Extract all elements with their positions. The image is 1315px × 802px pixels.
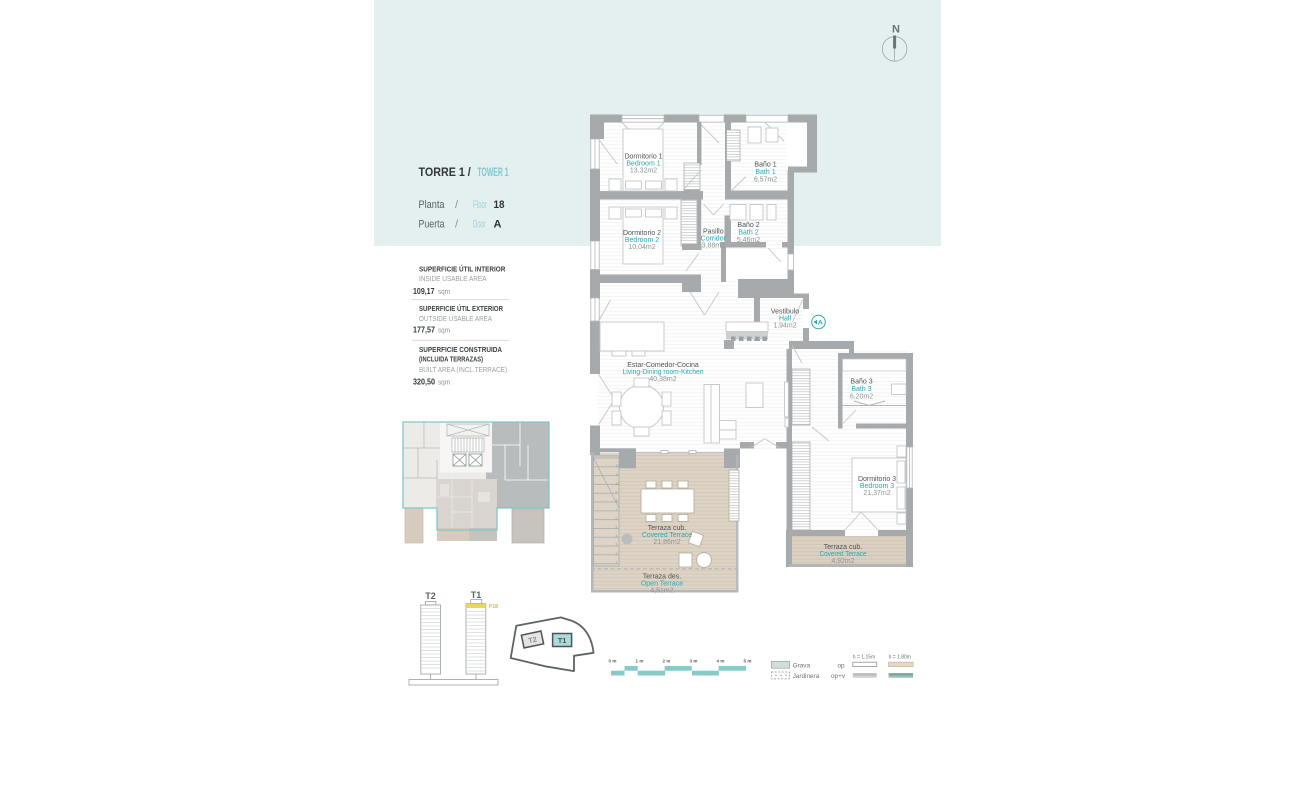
svg-text:Hall: Hall xyxy=(779,316,792,323)
svg-text:Terraza cub.: Terraza cub. xyxy=(824,544,863,551)
svg-text:op+v: op+v xyxy=(831,673,846,680)
svg-text:109,17: 109,17 xyxy=(413,287,435,296)
svg-text:h = 1.80m: h = 1.80m xyxy=(889,655,911,661)
svg-text:7: 7 xyxy=(616,508,618,512)
svg-text:Bedroom 2: Bedroom 2 xyxy=(625,237,659,244)
svg-text:5,46m2: 5,46m2 xyxy=(737,237,760,244)
svg-text:N: N xyxy=(892,24,900,36)
svg-text:INSIDE USABLE AREA: INSIDE USABLE AREA xyxy=(419,274,487,283)
svg-text:SUPERFICIE ÚTIL EXTERIOR: SUPERFICIE ÚTIL EXTERIOR xyxy=(419,304,503,313)
svg-text:Bath 1: Bath 1 xyxy=(755,169,775,176)
svg-text:Terraza des.: Terraza des. xyxy=(643,574,682,581)
svg-text:TORRE 1 /: TORRE 1 / xyxy=(419,165,472,179)
svg-text:Dormitorio 3: Dormitorio 3 xyxy=(858,476,896,483)
svg-text:sqm: sqm xyxy=(438,378,450,387)
svg-text:2 m: 2 m xyxy=(663,659,671,664)
svg-text:Bedroom 1: Bedroom 1 xyxy=(626,161,660,168)
svg-text:sqm: sqm xyxy=(438,326,450,335)
svg-text:sqm: sqm xyxy=(438,287,450,296)
svg-text:9: 9 xyxy=(616,491,618,495)
svg-text:Baño 3: Baño 3 xyxy=(850,379,872,386)
svg-text:1: 1 xyxy=(616,561,618,565)
svg-text:OUTSIDE USABLE AREA: OUTSIDE USABLE AREA xyxy=(419,314,493,323)
svg-text:Puerta: Puerta xyxy=(419,219,446,231)
svg-text:4,51m2: 4,51m2 xyxy=(650,588,673,595)
svg-text:3 m: 3 m xyxy=(690,659,698,664)
svg-text:3: 3 xyxy=(616,543,618,547)
svg-text:320,50: 320,50 xyxy=(413,378,436,387)
svg-text:2: 2 xyxy=(616,552,618,556)
svg-text:Dormitorio 2: Dormitorio 2 xyxy=(623,230,661,237)
svg-text:0 m: 0 m xyxy=(609,659,617,664)
svg-text:TOWER 1: TOWER 1 xyxy=(478,165,509,179)
svg-text:P18: P18 xyxy=(489,604,498,610)
svg-text:13,32m2: 13,32m2 xyxy=(630,168,657,175)
svg-text:T1: T1 xyxy=(471,590,482,600)
svg-text:6: 6 xyxy=(616,517,618,521)
svg-text:Floor: Floor xyxy=(473,199,487,211)
svg-text:Covered Terrace: Covered Terrace xyxy=(642,532,692,539)
svg-text:40,38m2: 40,38m2 xyxy=(649,376,676,383)
svg-text:SUPERFICIE ÚTIL INTERIOR: SUPERFICIE ÚTIL INTERIOR xyxy=(419,265,506,274)
svg-text:A: A xyxy=(818,320,823,327)
svg-text:op: op xyxy=(838,663,846,670)
svg-text:5 m: 5 m xyxy=(744,659,752,664)
svg-text:Covered Terrace: Covered Terrace xyxy=(820,551,867,558)
svg-text:1,94m2: 1,94m2 xyxy=(773,323,796,330)
svg-text:10: 10 xyxy=(616,482,620,486)
svg-text:11: 11 xyxy=(616,473,620,477)
svg-text:Terraza cub.: Terraza cub. xyxy=(648,525,687,532)
svg-text:Planta: Planta xyxy=(419,199,446,211)
svg-text:Estar-Comedor-Cocina: Estar-Comedor-Cocina xyxy=(627,362,699,369)
svg-text:10,04m2: 10,04m2 xyxy=(628,244,655,251)
svg-text:Living-Dining room-Kitchen: Living-Dining room-Kitchen xyxy=(623,369,704,376)
svg-text:h = 1.15m: h = 1.15m xyxy=(853,655,875,661)
svg-text:18: 18 xyxy=(494,199,505,211)
svg-text:Corridor: Corridor xyxy=(701,236,727,243)
svg-text:BUILT AREA (INCL.TERRACE): BUILT AREA (INCL.TERRACE) xyxy=(419,365,507,374)
svg-text:Jardinera: Jardinera xyxy=(793,673,820,680)
svg-text:3,88m2: 3,88m2 xyxy=(702,243,725,250)
svg-text:Vestibulo: Vestibulo xyxy=(771,309,800,316)
svg-text:Baño 2: Baño 2 xyxy=(737,222,759,229)
svg-text:Bath 2: Bath 2 xyxy=(738,230,758,237)
svg-text:Door: Door xyxy=(473,219,486,231)
svg-text:Grava: Grava xyxy=(793,663,811,670)
svg-text:12: 12 xyxy=(616,464,620,468)
svg-text:4: 4 xyxy=(616,534,618,538)
svg-text:T2: T2 xyxy=(527,635,537,646)
svg-text:21,86m2: 21,86m2 xyxy=(653,539,680,546)
svg-text:5: 5 xyxy=(616,526,618,530)
svg-text:Dormitorio 1: Dormitorio 1 xyxy=(624,154,662,161)
svg-text:1 m: 1 m xyxy=(636,659,644,664)
svg-text:Pasillo: Pasillo xyxy=(703,229,724,236)
svg-text:A: A xyxy=(494,219,502,231)
svg-text:Bedroom 3: Bedroom 3 xyxy=(860,483,894,490)
svg-text:SUPERFICIE CONSTRUIDA: SUPERFICIE CONSTRUIDA xyxy=(419,345,502,354)
svg-text:177,57: 177,57 xyxy=(413,326,435,335)
svg-text:T2: T2 xyxy=(425,591,436,601)
svg-text:6,20m2: 6,20m2 xyxy=(850,394,873,401)
svg-text:Open Terrace: Open Terrace xyxy=(641,581,683,588)
svg-text:4 m: 4 m xyxy=(717,659,725,664)
svg-text:(INCLUIDA TERRAZAS): (INCLUIDA TERRAZAS) xyxy=(419,354,483,363)
svg-text:6,57m2: 6,57m2 xyxy=(754,177,777,184)
svg-text:21,37m2: 21,37m2 xyxy=(863,490,890,497)
svg-text:4,92m2: 4,92m2 xyxy=(831,558,854,565)
svg-text:Baño 1: Baño 1 xyxy=(754,162,776,169)
svg-text:Bath 3: Bath 3 xyxy=(851,386,871,393)
svg-text:8: 8 xyxy=(616,499,618,503)
svg-text:T1: T1 xyxy=(558,636,567,645)
